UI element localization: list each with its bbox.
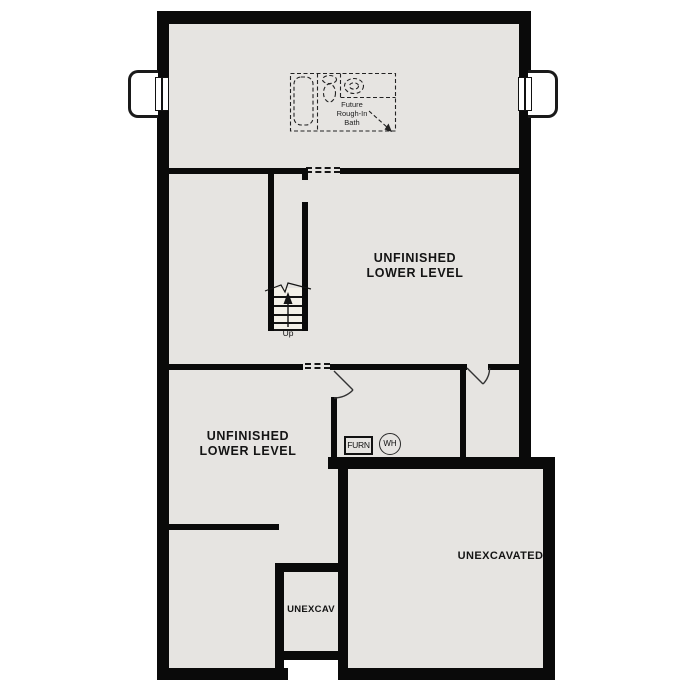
wall-upper-divider-left xyxy=(163,168,302,174)
floor-lower-left xyxy=(163,370,340,660)
opening-dashed-upper-a xyxy=(306,167,340,169)
window-left-mullion xyxy=(161,77,163,111)
bath-label-line3: Bath xyxy=(322,118,382,127)
stair-tread xyxy=(274,322,302,324)
room-label-line: LOWER LEVEL xyxy=(163,444,333,459)
water-heater-symbol: WH xyxy=(379,433,401,455)
opening-dashed-mid-b xyxy=(305,367,330,369)
room-label-upper-unfinished: UNFINISHED LOWER LEVEL xyxy=(330,251,500,281)
window-right-mullion xyxy=(524,77,526,111)
wall-stair-stub xyxy=(302,168,308,180)
wall-mid-divider-center xyxy=(330,364,467,370)
wall-stair-right xyxy=(302,202,308,331)
bath-label-line2: Rough-In xyxy=(322,109,382,118)
stair-tread xyxy=(274,296,302,298)
opening-dashed-mid-a xyxy=(305,363,330,365)
wall-mid-divider-left xyxy=(163,364,303,370)
window-well-left xyxy=(128,70,158,118)
window-well-right xyxy=(528,70,558,118)
stairs-up-label: Up xyxy=(276,328,300,338)
stair-tread xyxy=(274,314,302,316)
wall-unexcavated-bottom xyxy=(338,668,555,680)
furnace-symbol: FURN xyxy=(344,436,373,455)
bath-label-line1: Future xyxy=(322,100,382,109)
wall-pocket-top xyxy=(275,563,340,572)
wall-outer-left xyxy=(157,11,169,680)
opening-dashed-upper-b xyxy=(306,171,340,173)
room-label-line: LOWER LEVEL xyxy=(330,266,500,281)
floor-plan: UNFINISHED LOWER LEVEL UNFINISHED LOWER … xyxy=(0,0,687,687)
stair-tread xyxy=(274,305,302,307)
wall-stair-left xyxy=(268,171,274,331)
wall-unexcavated-right xyxy=(543,457,555,680)
floor-unexcavated-large xyxy=(340,460,554,678)
stair-treads-area xyxy=(274,288,302,331)
wall-partial-lower-left xyxy=(163,524,279,530)
wall-unexcavated-top xyxy=(328,457,555,469)
room-label-unexcavated: UNEXCAVATED xyxy=(428,550,573,562)
wall-furnace-right xyxy=(460,364,466,460)
wall-pocket-left xyxy=(275,563,284,680)
wall-outer-top xyxy=(157,11,531,24)
room-label-unexcav: UNEXCAV xyxy=(272,604,350,615)
room-label-line: UNFINISHED xyxy=(163,429,333,444)
wall-outer-bottom-left xyxy=(157,668,288,680)
wall-pocket-bottom xyxy=(275,651,348,660)
wall-upper-divider-right xyxy=(340,168,521,174)
room-label-lower-unfinished: UNFINISHED LOWER LEVEL xyxy=(163,429,333,459)
room-label-line: UNFINISHED xyxy=(330,251,500,266)
wall-mid-divider-right xyxy=(488,364,521,370)
